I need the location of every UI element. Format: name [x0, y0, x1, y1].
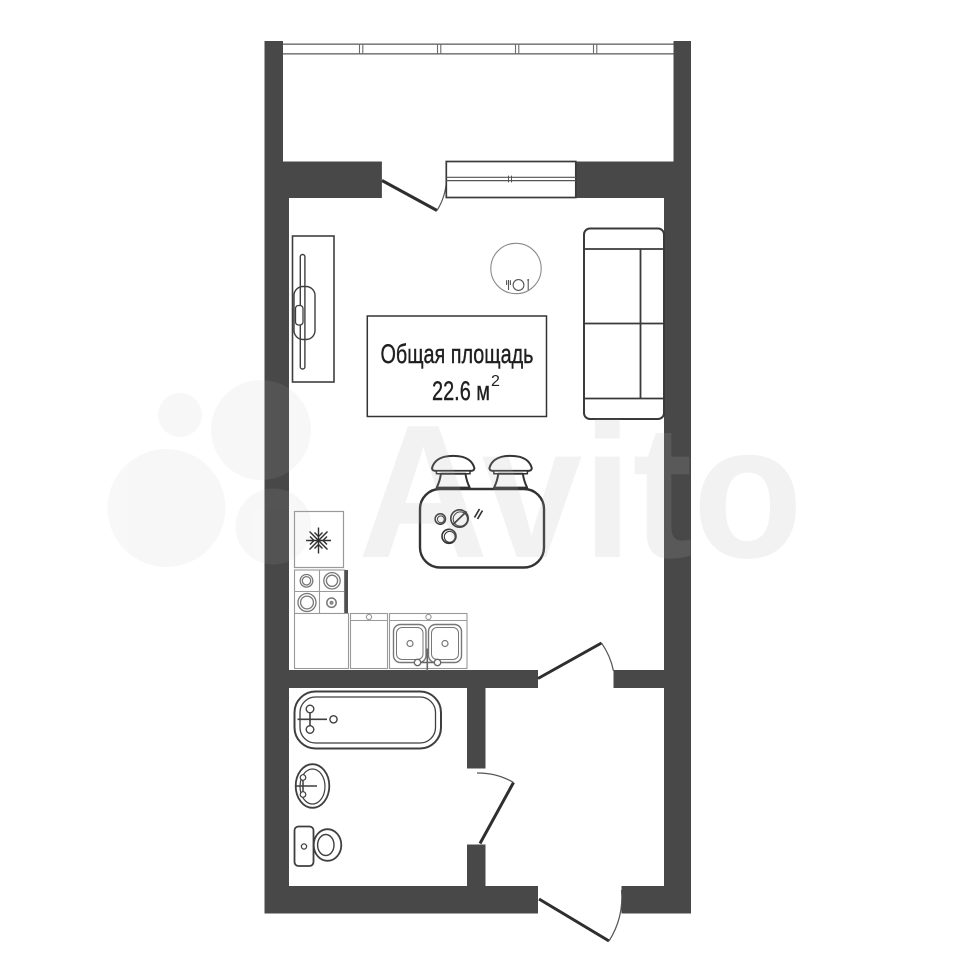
- svg-text:Общая площадь: Общая площадь: [381, 339, 534, 369]
- svg-text:Avito: Avito: [358, 386, 803, 598]
